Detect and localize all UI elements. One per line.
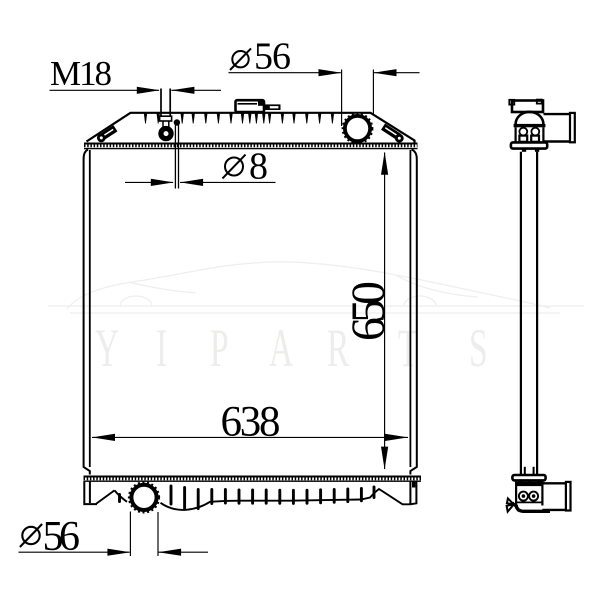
svg-text:M18: M18: [50, 54, 112, 93]
svg-text:650: 650: [343, 281, 395, 341]
svg-text:638: 638: [221, 399, 281, 446]
svg-text:Y: Y: [95, 318, 119, 378]
svg-text:8: 8: [249, 146, 268, 188]
svg-text:56: 56: [43, 514, 81, 560]
svg-text:56: 56: [254, 36, 291, 78]
svg-text:T: T: [398, 318, 418, 378]
svg-text:I: I: [156, 318, 167, 378]
svg-text:P: P: [210, 318, 229, 378]
svg-text:S: S: [469, 318, 488, 378]
svg-text:A: A: [269, 318, 294, 378]
